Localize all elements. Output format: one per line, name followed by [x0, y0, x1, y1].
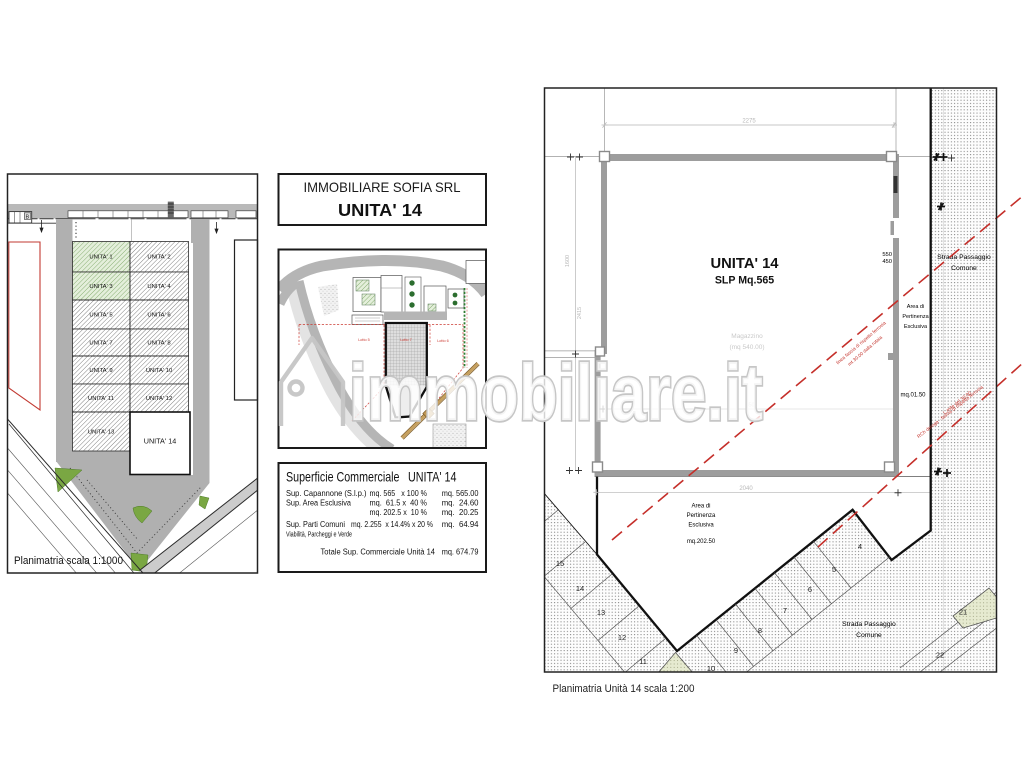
svg-text:Pertinenza: Pertinenza — [687, 513, 716, 519]
svg-text:mq. 2.255 x 14.4% x 20 %: mq. 2.255 x 14.4% x 20 % — [351, 520, 433, 529]
svg-text:mq. 674.79: mq. 674.79 — [442, 548, 479, 557]
svg-text:UNITA' 3: UNITA' 3 — [89, 284, 113, 290]
svg-text:6: 6 — [808, 585, 812, 594]
svg-text:UNITA' 8: UNITA' 8 — [147, 341, 171, 347]
svg-text:Sup. Area Esclusiva: Sup. Area Esclusiva — [286, 499, 351, 508]
svg-text:UNITA' 10: UNITA' 10 — [146, 368, 173, 374]
svg-text:mq.202.50: mq.202.50 — [687, 539, 716, 545]
svg-text:Comune: Comune — [951, 265, 977, 272]
svg-text:mq. 24.60: mq. 24.60 — [442, 499, 479, 508]
svg-text:Magazzino: Magazzino — [731, 333, 763, 340]
svg-text:IMMOBILIARE SOFIA SRL: IMMOBILIARE SOFIA SRL — [304, 180, 461, 195]
svg-text:UNITA' 5: UNITA' 5 — [89, 313, 113, 319]
svg-text:2040: 2040 — [739, 486, 753, 492]
svg-text:Lotto 7: Lotto 7 — [400, 338, 412, 342]
svg-text:15: 15 — [556, 559, 564, 568]
svg-text:mq.01.50: mq.01.50 — [901, 393, 927, 399]
svg-text:13: 13 — [597, 608, 605, 617]
svg-text:mq. 64.94: mq. 64.94 — [442, 520, 479, 529]
svg-text:Sup. Capannone (S.l.p.): Sup. Capannone (S.l.p.) — [286, 489, 367, 498]
svg-text:22: 22 — [936, 651, 944, 660]
svg-text:12: 12 — [618, 633, 626, 642]
svg-text:9: 9 — [734, 646, 738, 655]
svg-text:Strada Passaggio: Strada Passaggio — [842, 621, 896, 628]
svg-text:mq. 565 x 100 %: mq. 565 x 100 % — [370, 489, 428, 498]
svg-text:8: 8 — [758, 626, 762, 635]
svg-text:mq. 61.5 x 40 %: mq. 61.5 x 40 % — [370, 499, 428, 508]
svg-text:Lotto 5: Lotto 5 — [358, 338, 370, 342]
svg-text:Planimatria scala 1:1000: Planimatria scala 1:1000 — [14, 555, 123, 567]
svg-text:Sup. Parti Comuni: Sup. Parti Comuni — [286, 520, 345, 529]
svg-text:B: B — [26, 214, 30, 220]
svg-text:UNITA' 14: UNITA' 14 — [408, 470, 457, 485]
svg-text:mq. 202.5 x 10 %: mq. 202.5 x 10 % — [370, 508, 428, 517]
svg-text:UNITA' 4: UNITA' 4 — [147, 284, 171, 290]
svg-text:11: 11 — [639, 657, 647, 666]
svg-text:UNITA' 6: UNITA' 6 — [147, 313, 171, 319]
svg-text:550: 550 — [882, 252, 892, 258]
svg-text:mq. 20.25: mq. 20.25 — [442, 508, 479, 517]
svg-text:Strada Passaggio: Strada Passaggio — [937, 254, 991, 261]
svg-text:UNITA' 14: UNITA' 14 — [711, 256, 780, 272]
svg-text:Area di: Area di — [691, 504, 710, 510]
svg-text:Esclusiva: Esclusiva — [904, 324, 928, 330]
svg-text:Superficie Commerciale: Superficie Commerciale — [286, 470, 400, 485]
svg-text:Area di: Area di — [907, 304, 924, 310]
svg-text:SLP Mq.565: SLP Mq.565 — [715, 275, 774, 287]
svg-text:UNITA' 2: UNITA' 2 — [147, 255, 170, 261]
svg-text:Totale Sup. Commerciale Unità: Totale Sup. Commerciale Unità 14 — [321, 548, 436, 557]
svg-text:UNITA' 11: UNITA' 11 — [88, 396, 114, 402]
svg-text:1600: 1600 — [565, 255, 571, 267]
svg-text:5: 5 — [832, 565, 836, 574]
svg-text:Pertinenza: Pertinenza — [902, 314, 929, 320]
svg-text:2415: 2415 — [577, 307, 583, 319]
svg-text:21: 21 — [959, 608, 967, 617]
svg-text:UNITA' 7: UNITA' 7 — [89, 341, 112, 347]
svg-text:Comune: Comune — [856, 632, 882, 639]
svg-text:UNITA' 9: UNITA' 9 — [89, 368, 112, 374]
svg-text:Esclusiva: Esclusiva — [688, 523, 714, 529]
svg-text:UNITA' 14: UNITA' 14 — [338, 200, 422, 220]
svg-text:4: 4 — [858, 542, 862, 551]
svg-text:7: 7 — [783, 606, 787, 615]
svg-text:UNITA' 13: UNITA' 13 — [88, 430, 115, 436]
svg-text:UNITA' 1: UNITA' 1 — [89, 255, 112, 261]
svg-text:UNITA' 12: UNITA' 12 — [146, 396, 173, 402]
svg-text:Viabilità, Parcheggi e Verde: Viabilità, Parcheggi e Verde — [286, 532, 352, 539]
svg-text:mq. 565.00: mq. 565.00 — [442, 489, 479, 498]
svg-text:Planimatria Unità 14 scala 1:2: Planimatria Unità 14 scala 1:200 — [553, 683, 695, 695]
svg-text:UNITA' 14: UNITA' 14 — [144, 437, 176, 446]
svg-text:immobiliare.it: immobiliare.it — [349, 348, 763, 437]
svg-text:14: 14 — [576, 584, 584, 593]
svg-text:2275: 2275 — [742, 119, 756, 125]
svg-text:450: 450 — [882, 259, 892, 265]
svg-text:Lotto 6: Lotto 6 — [437, 339, 449, 343]
